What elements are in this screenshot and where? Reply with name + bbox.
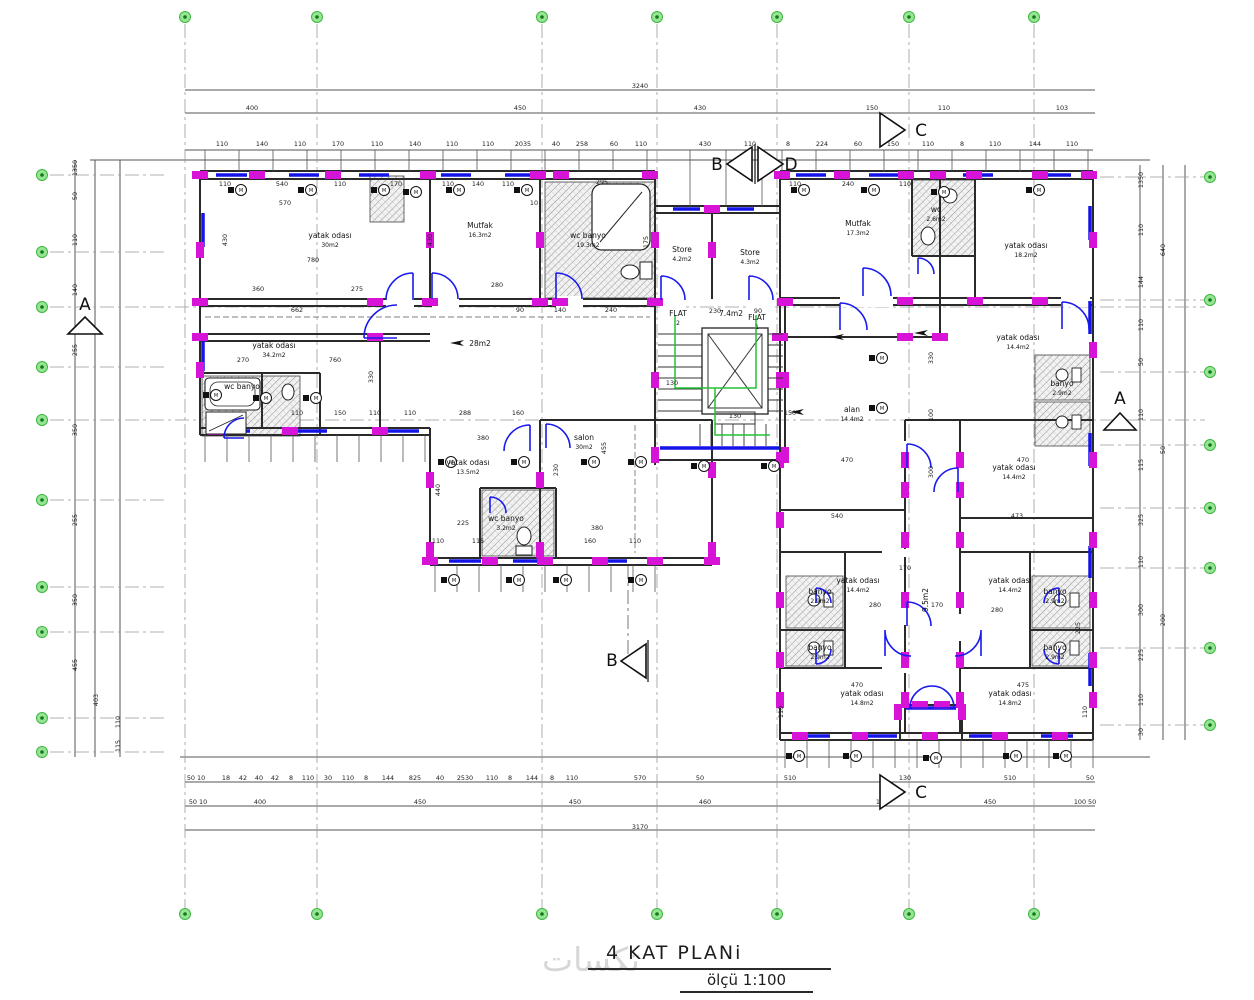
room-name-label: Mutfak: [845, 219, 871, 228]
dimension-label: 280: [991, 606, 1003, 614]
room-name-label: salon: [574, 433, 594, 442]
room-name-label: wc banyo: [488, 514, 524, 523]
dimension-label: 50: [1159, 446, 1167, 454]
fixture-box-icon: [553, 577, 559, 583]
fixture-glyph: M: [1037, 188, 1041, 194]
dimension-label: 240: [605, 306, 617, 314]
column-marker: [901, 692, 909, 708]
dimension-label: 30: [324, 774, 332, 782]
dimension-label: 230: [552, 464, 560, 476]
dimension-label: 570: [279, 199, 291, 207]
grid-bubble-dot: [40, 305, 44, 309]
dimension-label: 18: [222, 774, 230, 782]
dimension-label: 275: [351, 285, 363, 293]
dimension-label: 110: [989, 140, 1001, 148]
dimension-label: 150: [866, 104, 878, 112]
column-marker: [704, 205, 720, 213]
column-marker: [1032, 171, 1048, 179]
dimension-label: 8: [508, 774, 512, 782]
fixture-box-icon: [253, 395, 259, 401]
column-marker: [1052, 732, 1068, 740]
dimension-label: 42: [271, 774, 279, 782]
fixture-box-icon: [438, 459, 444, 465]
column-marker: [372, 427, 388, 435]
fixture-glyph: M: [854, 754, 858, 760]
dimension-label: 470: [851, 681, 863, 689]
grid-bubble-dot: [1032, 912, 1036, 916]
fixture-glyph: M: [797, 754, 801, 760]
column-marker: [651, 232, 659, 248]
fixture-box-icon: [511, 459, 517, 465]
column-marker: [776, 372, 784, 388]
toilet-tank: [1070, 593, 1079, 607]
room-name-label: banyo: [808, 643, 832, 652]
column-marker: [426, 472, 434, 488]
dimension-label: 110: [1137, 409, 1145, 421]
fixture-box-icon: [303, 395, 309, 401]
dimension-label: 224: [816, 140, 828, 148]
column-marker: [367, 298, 383, 306]
dimension-label: 100 50: [1074, 798, 1096, 806]
column-marker: [592, 557, 608, 565]
dimension-label: 780: [307, 256, 319, 264]
fixture-box-icon: [923, 755, 929, 761]
grid-bubble-dot: [1208, 370, 1212, 374]
dimension-label: 175: [642, 236, 650, 248]
section-letter: C: [915, 783, 927, 803]
dimension-label: 430: [221, 234, 229, 246]
room-name-label: 28m2: [469, 339, 491, 348]
dimension-label: 144: [1137, 276, 1145, 288]
room-area-label: 3.2m2: [496, 525, 515, 532]
fixture-glyph: M: [525, 188, 529, 194]
dimension-label: 225: [457, 519, 469, 527]
fixture-box-icon: [371, 187, 377, 193]
room-area-label: 2: [676, 320, 680, 327]
column-marker: [708, 542, 716, 558]
room-name-label: banyo: [808, 587, 832, 596]
column-marker: [776, 592, 784, 608]
room-name-label: yatak odası: [840, 689, 883, 698]
dimension-label: 110: [371, 140, 383, 148]
room-area-label: 30m2: [321, 242, 338, 249]
dimension-label: 50 10: [189, 798, 207, 806]
dimension-label: 110: [777, 706, 785, 718]
toilet: [921, 227, 935, 245]
room-name-label: banyo: [1050, 379, 1074, 388]
column-marker: [530, 171, 546, 179]
dimension-label: 170: [899, 564, 911, 572]
column-marker: [282, 427, 298, 435]
direction-arrow-icon: [914, 330, 928, 336]
room-name-label: wc banyo: [570, 231, 606, 240]
dimension-label: 8: [289, 774, 293, 782]
door-arc: [546, 424, 570, 448]
column-marker: [834, 171, 850, 179]
grid-bubble-dot: [1032, 15, 1036, 19]
dimension-label: 455: [600, 442, 608, 454]
grid-bubble-dot: [1208, 723, 1212, 727]
section-letter: A: [79, 295, 91, 315]
dimension-label: 110: [432, 537, 444, 545]
room-name-label: FLAT: [748, 313, 766, 322]
column-marker: [532, 298, 548, 306]
title-block: تكسات 4 KAT PLANi ölçü 1:100: [556, 938, 976, 998]
dimension-label: 115: [472, 537, 484, 545]
column-marker: [852, 732, 868, 740]
section-triangle: [621, 644, 646, 678]
room-area-label: 14.4m2: [846, 587, 869, 594]
dimension-label: 110: [899, 180, 911, 188]
room-area-label: 2.9m2: [810, 654, 829, 661]
fixture-box-icon: [403, 189, 409, 195]
column-marker: [422, 557, 438, 565]
dimension-label: 360: [252, 285, 264, 293]
dimension-label: 258: [576, 140, 588, 148]
fixture-glyph: M: [264, 396, 268, 402]
dimension-label: 110: [482, 140, 494, 148]
section-letter: A: [1114, 389, 1126, 409]
fixture-glyph: M: [772, 464, 776, 470]
column-marker: [898, 171, 914, 179]
dimension-label: 662: [291, 306, 303, 314]
dimension-label: 110: [294, 140, 306, 148]
dimension-label: 2035: [515, 140, 531, 148]
fixture-glyph: M: [702, 464, 706, 470]
door-opening: [863, 295, 893, 307]
dimension-label: 110: [635, 140, 647, 148]
dimension-label: 103: [1056, 104, 1068, 112]
dimension-label: 170: [931, 601, 943, 609]
dimension-label: 330: [927, 352, 935, 364]
dimension-label: 110: [291, 409, 303, 417]
fixture-glyph: M: [880, 356, 884, 362]
dimension-label: 110: [629, 537, 641, 545]
dimension-label: 40: [255, 774, 263, 782]
dimension-label: 140: [71, 284, 79, 296]
room-area-label: 13.5m2: [456, 469, 479, 476]
section-letter: D: [784, 155, 797, 175]
toilet-tank: [516, 546, 532, 555]
dimension-label: 403: [92, 694, 100, 706]
room-area-label: 14.4m2: [998, 587, 1021, 594]
column-marker: [367, 333, 383, 341]
dimension-label: 300: [927, 466, 935, 478]
grid-bubble-dot: [1208, 175, 1212, 179]
dimension-label: 144: [382, 774, 394, 782]
column-marker: [1081, 171, 1097, 179]
room-name-label: yatak odası: [988, 689, 1031, 698]
section-letter: B: [711, 155, 723, 175]
dimension-label: 115: [1137, 459, 1145, 471]
dimension-label: 440: [434, 484, 442, 496]
room-name-label: yatak odası: [1004, 241, 1047, 250]
fixture-box-icon: [1053, 753, 1059, 759]
dimension-label: 160: [512, 409, 524, 417]
fixture-glyph: M: [639, 460, 643, 466]
dimension-label: 8: [364, 774, 368, 782]
room-name-label: Store: [672, 245, 692, 254]
dimension-label: 8: [786, 140, 790, 148]
room-area-label: 14.8m2: [850, 700, 873, 707]
dimension-label: 50: [696, 774, 704, 782]
column-marker: [1089, 692, 1097, 708]
fixture-box-icon: [514, 187, 520, 193]
column-marker: [249, 171, 265, 179]
fixture-glyph: M: [564, 578, 568, 584]
fixture-glyph: M: [457, 188, 461, 194]
room-name-label: alan: [844, 405, 860, 414]
door-opening: [660, 296, 686, 308]
fixture-box-icon: [1003, 753, 1009, 759]
door-arc: [918, 258, 934, 274]
column-marker: [642, 171, 658, 179]
dimension-label: 450: [984, 798, 996, 806]
dimension-label: 50 10: [187, 774, 205, 782]
dimension-label: 130: [666, 379, 678, 387]
dimension-label: 400: [246, 104, 258, 112]
door-arc: [386, 273, 413, 300]
column-marker: [894, 704, 902, 720]
dimension-label: 90: [516, 306, 524, 314]
room-name-label: Mutfak: [467, 221, 493, 230]
dimension-label: 110: [744, 140, 756, 148]
dimension-label: 110: [404, 409, 416, 417]
toilet-tank: [1070, 641, 1079, 655]
dimension-label: 825: [409, 774, 421, 782]
fixture-box-icon: [628, 459, 634, 465]
column-marker: [1089, 652, 1097, 668]
room-area-label: 19.3m2: [576, 242, 599, 249]
column-marker: [192, 333, 208, 341]
column-marker: [647, 557, 663, 565]
room-area-label: 2.6m2: [926, 216, 945, 223]
room-name-label: banyo: [1043, 643, 1067, 652]
room-area-label: 14.4m2: [1006, 344, 1029, 351]
room-area-label: 2.9m2: [1045, 598, 1064, 605]
fixture-box-icon: [861, 187, 867, 193]
dimension-label: 110: [1137, 694, 1145, 706]
fixture-box-icon: [581, 459, 587, 465]
plan-scale: ölçü 1:100: [680, 971, 813, 993]
grid-bubble-dot: [1208, 443, 1212, 447]
dimension-label: 110: [1137, 556, 1145, 568]
column-marker: [536, 472, 544, 488]
grid-bubble-dot: [907, 912, 911, 916]
dimension-label: 110: [216, 140, 228, 148]
room-name-label: wc: [931, 205, 941, 214]
column-marker: [776, 512, 784, 528]
fixture-glyph: M: [872, 188, 876, 194]
dimension-label: 100: [927, 409, 935, 421]
column-marker: [776, 652, 784, 668]
dimension-label: 50: [1086, 774, 1094, 782]
dimension-label: 240: [842, 180, 854, 188]
column-marker: [196, 242, 204, 258]
grid-bubble-dot: [40, 716, 44, 720]
column-marker: [930, 171, 946, 179]
floor-plan-drawing: MMMMMMMMMMMMMMMMMMMMMMMMMMMMMM 324040045…: [0, 0, 1254, 1000]
room-area-label: 14.4m2: [1002, 474, 1025, 481]
dimension-label: 270: [237, 356, 249, 364]
column-marker: [704, 557, 720, 565]
dimension-label: 200: [1159, 614, 1167, 626]
dimension-label: 400: [254, 798, 266, 806]
dimension-label: 1350: [1137, 172, 1145, 188]
dimension-label: 110: [342, 774, 354, 782]
grid-bubble-dot: [1208, 646, 1212, 650]
room-name-label: wc banyo: [224, 382, 260, 391]
fixture-glyph: M: [414, 190, 418, 196]
toilet-tank: [1072, 415, 1081, 429]
column-marker: [897, 297, 913, 305]
room-area-label: 1: [755, 324, 759, 331]
dimension-label: 42: [239, 774, 247, 782]
dimension-label: 325: [1137, 514, 1145, 526]
room-area-label: 30m2: [575, 444, 592, 451]
fixture-glyph: M: [309, 188, 313, 194]
grid-bubble-dot: [183, 912, 187, 916]
fixture-box-icon: [761, 463, 767, 469]
column-marker: [958, 704, 966, 720]
column-marker: [956, 592, 964, 608]
fixture-box-icon: [298, 187, 304, 193]
column-marker: [932, 333, 948, 341]
column-marker: [1089, 452, 1097, 468]
dimension-label: 110: [446, 140, 458, 148]
stair-core: [658, 328, 783, 446]
dimension-label: 110: [486, 774, 498, 782]
column-marker: [966, 171, 982, 179]
column-marker: [922, 732, 938, 740]
dimension-label: 130: [729, 412, 741, 420]
dimension-label: 150: [784, 409, 796, 417]
dimension-label: 130: [899, 774, 911, 782]
grid-bubble-dot: [1208, 566, 1212, 570]
fixture-glyph: M: [452, 578, 456, 584]
dimension-label: 280: [491, 281, 503, 289]
column-marker: [967, 297, 983, 305]
column-marker: [536, 232, 544, 248]
fixture-glyph: M: [942, 190, 946, 196]
dimension-label: 160: [584, 537, 596, 545]
fixture-glyph: M: [639, 578, 643, 584]
column-marker: [897, 333, 913, 341]
dimension-label: 1350: [71, 160, 79, 176]
dimension-label: 450: [514, 104, 526, 112]
room-area-label: 18.2m2: [1014, 252, 1037, 259]
room-area-label: 2.9m2: [1045, 654, 1064, 661]
fixture-box-icon: [691, 463, 697, 469]
toilet: [621, 265, 639, 279]
fixture-glyph: M: [239, 188, 243, 194]
dimension-label: 430: [699, 140, 711, 148]
fixture-box-icon: [931, 189, 937, 195]
fixture-glyph: M: [934, 756, 938, 762]
dimension-label: 450: [569, 798, 581, 806]
fixture-box-icon: [506, 577, 512, 583]
column-marker: [651, 447, 659, 463]
fixture-glyph: M: [880, 406, 884, 412]
grid-bubble-dot: [40, 365, 44, 369]
dimension-label: 460: [699, 798, 711, 806]
dimension-label: 150: [334, 409, 346, 417]
fixture-glyph: M: [1014, 754, 1018, 760]
grid-bubble-dot: [40, 250, 44, 254]
dimension-label: 8: [550, 774, 554, 782]
dimension-label: 8: [960, 140, 964, 148]
toilet-tank: [640, 262, 652, 279]
column-marker: [552, 298, 568, 306]
dimension-label: 144: [1029, 140, 1041, 148]
dimension-label: 510: [784, 774, 796, 782]
room-area-label: 14.4m2: [840, 416, 863, 423]
fixture-glyph: M: [592, 460, 596, 466]
grid-bubble-dot: [315, 15, 319, 19]
fixture-box-icon: [843, 753, 849, 759]
dimension-label: 140: [256, 140, 268, 148]
room-name-label: yatak odası: [836, 576, 879, 585]
fixture-glyph: M: [802, 188, 806, 194]
grid-bubble-dot: [40, 630, 44, 634]
room-name-label: Store: [740, 248, 760, 257]
dimension-label: 110: [71, 234, 79, 246]
column-marker: [422, 298, 438, 306]
dimension-label: 140: [409, 140, 421, 148]
grid-bubble-dot: [40, 418, 44, 422]
column-marker: [901, 482, 909, 498]
fixture-glyph: M: [214, 393, 218, 399]
fixture-box-icon: [203, 392, 209, 398]
room-name-label: yatak odası: [446, 458, 489, 467]
fixture-box-icon: [869, 405, 875, 411]
dimension-label: 40: [436, 774, 444, 782]
column-marker: [537, 557, 553, 565]
grid-bubble-dot: [775, 15, 779, 19]
dimension-label: 40: [552, 140, 560, 148]
grid-bubble-dot: [40, 498, 44, 502]
column-marker: [1032, 297, 1048, 305]
column-marker: [192, 171, 208, 179]
grid-bubble-dot: [315, 912, 319, 916]
column-marker: [536, 542, 544, 558]
fixture-glyph: M: [517, 578, 521, 584]
dimension-label: 110: [114, 716, 122, 728]
dimension-label: 110: [922, 140, 934, 148]
dimension-label: 140: [472, 180, 484, 188]
fixture-box-icon: [786, 753, 792, 759]
dimension-label: 110: [302, 774, 314, 782]
door-arc: [504, 425, 530, 451]
room-area-label: 17.3m2: [846, 230, 869, 237]
fixture-glyph: M: [522, 460, 526, 466]
dimension-label: 110: [1137, 319, 1145, 331]
dimension-label: 570: [634, 774, 646, 782]
column-marker: [1089, 592, 1097, 608]
dimension-label: 255: [71, 514, 79, 526]
column-marker: [1089, 342, 1097, 358]
dimension-label: 110: [566, 774, 578, 782]
dimension-label: 110: [1137, 224, 1145, 236]
room-name-label: 7.4m2: [719, 309, 743, 318]
grid-bubble-dot: [775, 912, 779, 916]
room-area-label: 34.2m2: [262, 352, 285, 359]
dimension-label: 760: [329, 356, 341, 364]
dimension-label: 115: [114, 740, 122, 752]
dimension-label: 170: [390, 180, 402, 188]
dimension-label: 380: [477, 434, 489, 442]
door-arc: [863, 268, 891, 296]
